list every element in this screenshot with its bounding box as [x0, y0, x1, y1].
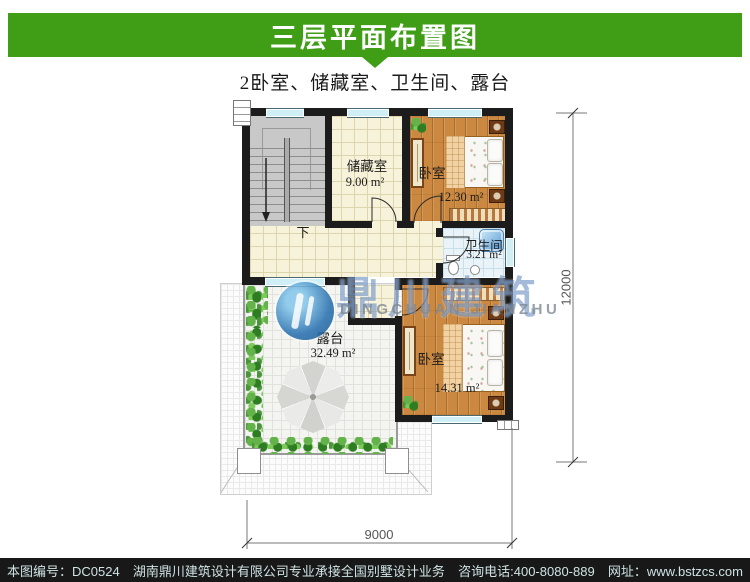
bathroom-basin — [470, 265, 480, 275]
bedroom2-wardrobe — [403, 326, 416, 376]
wall-bedroom1-left — [402, 116, 410, 228]
bedroom1-label: 卧室 — [419, 162, 446, 182]
wall-bedroom1-bottom-right — [442, 221, 505, 228]
window-staircase — [266, 108, 304, 118]
flue-symbol-top-left — [233, 100, 251, 126]
wall-bedroom2-top — [395, 278, 513, 285]
bedroom2-pillow-bottom — [487, 359, 503, 386]
wall-passage-left — [348, 285, 355, 318]
bedroom1-rug — [449, 208, 506, 222]
wall-bedroom2-left-bottom — [395, 316, 402, 422]
window-bedroom2 — [432, 415, 482, 424]
stair-rail — [284, 138, 290, 222]
footer-bar: 本图编号：DC0524 湖南鼎川建筑设计有限公司专业承接全国别墅设计业务 咨询电… — [0, 558, 750, 582]
terrace-plants-corner — [246, 286, 268, 328]
terrace-label: 露台 — [317, 327, 344, 347]
footer-phone: 咨询电话:400-8080-889 — [458, 561, 595, 580]
footer-company: 湖南鼎川建筑设计有限公司专业承接全国别墅设计业务 — [133, 561, 445, 580]
bedroom1-area: 12.30 m² — [439, 190, 484, 205]
window-bedroom1 — [428, 108, 482, 118]
bedroom2-rug — [443, 287, 505, 301]
bedroom2-area: 14.31 m² — [435, 381, 480, 396]
wall-storage-bottom-left — [325, 221, 372, 228]
bedroom1-pillow-top — [487, 139, 503, 162]
bedroom1-blanket — [446, 136, 465, 188]
window-bathroom — [505, 238, 515, 267]
page-title: 三层平面布置图 — [270, 16, 480, 55]
bathroom-toilet-bowl — [448, 261, 459, 275]
wall-stair-divider — [325, 116, 332, 228]
banner-pointer-triangle — [362, 57, 388, 68]
footer-website: 网址：www.bstzcs.com — [608, 561, 743, 580]
bedroom1-nightstand-top — [489, 120, 505, 134]
bedroom2-label: 卧室 — [418, 348, 445, 368]
terrace-post-right — [385, 448, 409, 474]
bedroom2-plant — [403, 396, 418, 411]
terrace-post-left — [237, 448, 261, 474]
bedroom1-pillow-bottom — [487, 163, 503, 186]
wall-passage-bottom — [348, 318, 402, 325]
title-banner: 三层平面布置图 — [8, 13, 742, 57]
wall-left — [242, 108, 250, 285]
wall-right-lower — [505, 285, 513, 422]
wall-bedroom2-left-top — [395, 278, 402, 290]
passage-floor — [355, 285, 395, 318]
terrace-plants-bottom — [252, 437, 393, 454]
dimension-width: 9000 — [357, 527, 401, 542]
bedroom1-nightstand-bottom — [489, 189, 505, 203]
window-storage — [347, 108, 389, 118]
terrace-sliding-door — [265, 277, 325, 287]
wall-bathroom-left-top — [436, 228, 443, 237]
flue-symbol-bottom-right — [497, 420, 519, 430]
bedroom2-pillow-top — [487, 330, 503, 357]
stair-down-label: 下 — [296, 222, 309, 241]
footer-drawing-number: 本图编号：DC0524 — [7, 561, 120, 580]
wall-bedroom1-bottom-left — [402, 221, 412, 228]
bedroom2-nightstand-top — [488, 306, 504, 320]
terrace-area: 32.49 m² — [311, 346, 356, 361]
bedroom1-plant — [411, 118, 426, 133]
storage-area: 9.00 m² — [346, 175, 384, 190]
plan-subtitle: 2卧室、储藏室、卫生间、露台 — [0, 68, 750, 95]
bedroom2-nightstand-bottom — [488, 396, 504, 410]
dimension-height: 12000 — [559, 266, 574, 310]
terrace-umbrella — [277, 361, 349, 433]
floor-plan-page: 三层平面布置图 2卧室、储藏室、卫生间、露台 — [0, 0, 750, 582]
storage-label: 储藏室 — [347, 155, 388, 175]
bathroom-area: 3.21 m² — [466, 249, 501, 261]
